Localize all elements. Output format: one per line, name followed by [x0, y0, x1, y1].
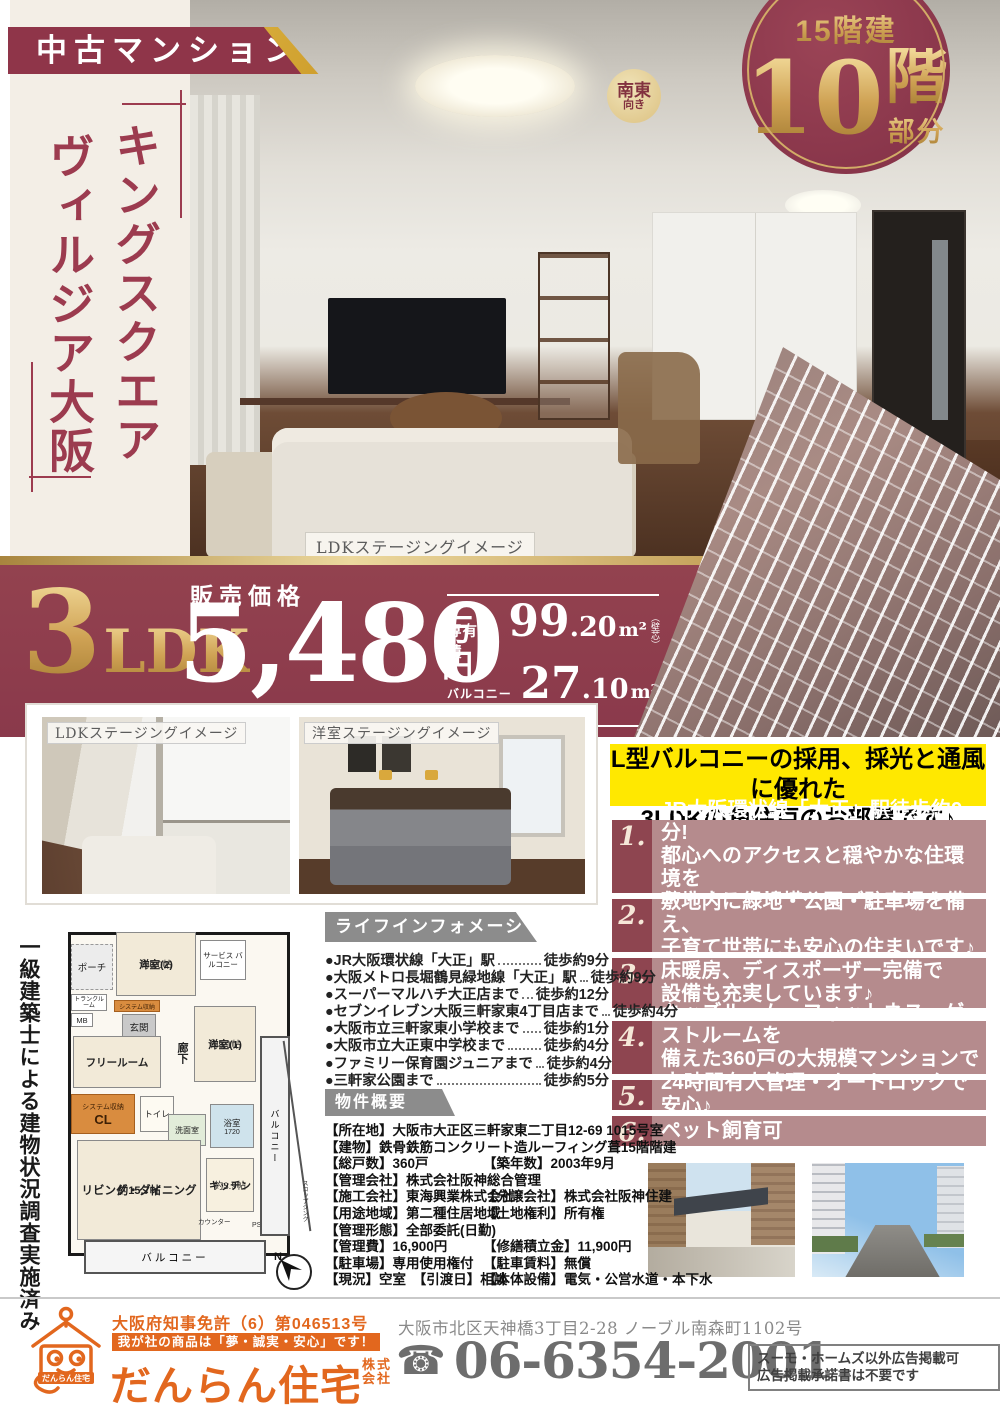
outline-list: 【所在地】大阪市大正区三軒家東二丁目12-69 1015号室 【建物】鉄骨鉄筋コ…: [325, 1119, 647, 1285]
label-counter: カウンター: [198, 1216, 231, 1226]
feature-text: 敷地内に緑地・公園・駐車場を備え、: [661, 891, 966, 936]
yellow-pillow: [425, 770, 438, 780]
company-slogan: 我が社の商品は「夢・誠実・安心」です！: [112, 1333, 380, 1351]
feature-item-1: 1. JR大阪環状線「大正」駅徒歩約9分! 都心へのアクセスと穏やかな住環境を …: [612, 820, 986, 893]
room-mb: MB: [71, 1013, 93, 1027]
room-living-dining: リビング・ダイニング 約15.7帖: [77, 1140, 201, 1240]
floor-badge-kai: 階: [886, 48, 948, 107]
outline-row: 【総戸数】360戸【築年数】2003年9月: [325, 1152, 647, 1169]
outline-row: 【用途地域】第二種住居地域【土地権利】所有権: [325, 1202, 647, 1219]
life-info-row: ●スーパーマルハチ大正店まで徒歩約12分: [325, 983, 609, 1000]
life-info-row: ●大阪メトロ長堀鶴見緑地線「大正」駅徒歩約9分: [325, 966, 609, 983]
feature-text: JR大阪環状線「大正」駅徒歩約9分!: [661, 799, 963, 844]
direction-sub: 向き: [623, 99, 645, 111]
flyer-page: LDKステージングイメージ キングスクエア ヴィルジア大阪 中古マンション 15…: [0, 0, 1000, 1413]
svg-text:N: N: [274, 1251, 282, 1263]
outline-row: 【管理費】16,900円【修繕積立金】11,900円: [325, 1235, 647, 1252]
outline-row: 【現況】空室 【引渡日】相談【本体設備】電気・公営水道・本下水: [325, 1268, 647, 1285]
floor-badge-building: 15階建: [742, 6, 950, 50]
life-info-row: ●ファミリー保育園ジュニアまで徒歩約4分: [325, 1052, 609, 1069]
curtain: [190, 95, 260, 465]
floor-badge-number: 10: [744, 52, 883, 144]
bedroom-staging-photo: 洋室ステージングイメージ: [299, 717, 585, 894]
phone-icon: ☎: [396, 1341, 446, 1381]
greenery: [812, 1236, 858, 1252]
driveway: [845, 1225, 939, 1277]
layout-number: 3: [22, 575, 101, 689]
exclusive-area-int: 99: [508, 600, 569, 644]
room-bath: 浴室 1720: [210, 1104, 254, 1148]
outline-row: 【建物】鉄骨鉄筋コンクリート造ルーフィング葺15階階建: [325, 1136, 647, 1153]
property-title-line1: キングスクエア: [112, 122, 158, 465]
balcony-area-int: 27: [520, 662, 581, 706]
feature-text: 床暖房、ディスポーザー完備で: [661, 960, 943, 982]
ldk-photo-caption: LDKステージングイメージ: [47, 722, 246, 744]
feature-text: キッズルーム・フィットネス・ゲストルームを: [661, 1002, 965, 1047]
floor-plan: 洋室(2) 約6.0帖 サービス バルコニー ポーチ トランクルーム MB シス…: [56, 918, 324, 1313]
floor-badge-part: 部分: [888, 110, 946, 149]
title-panel: キングスクエア ヴィルジア大阪: [10, 0, 190, 558]
exclusive-area-label: 専有面積: [447, 620, 500, 662]
room-free-room: フリールーム: [73, 1036, 161, 1088]
feature-number: 2.: [612, 899, 652, 952]
approach-photo: [812, 1163, 964, 1277]
outline-row: 【駐車場】専用使用権付【駐車賃料】無償: [325, 1252, 647, 1269]
feature-item-4: 4. キッズルーム・フィットネス・ゲストルームを 備えた360戸の大規模マンショ…: [612, 1021, 986, 1074]
exclusive-area-unit: m²: [619, 619, 647, 641]
feature-number: 4.: [612, 1021, 652, 1074]
bedroom-photo-caption: 洋室ステージングイメージ: [304, 722, 499, 744]
feature-item-2: 2. 敷地内に緑地・公園・駐車場を備え、 子育て世帯にも安心の住まいです♪: [612, 899, 986, 952]
outline-header: 物件概要: [325, 1089, 455, 1116]
title-deco-line: [29, 476, 91, 478]
sofa: [82, 836, 216, 894]
exclusive-area-note: （壁芯）: [650, 613, 659, 649]
ad-policy-note: スーモ・ホームズ以外広告掲載可 広告掲載承諾書は不要です: [748, 1344, 1000, 1391]
exclusive-area-dec: .20: [570, 612, 617, 643]
life-info-row: ●JR大阪環状線「大正」駅徒歩約9分: [325, 949, 609, 966]
room-closet: システム収納 CL: [71, 1094, 135, 1134]
feature-item-5: 5. 24時間有人管理・オートロックで安心♪: [612, 1080, 986, 1110]
highlight-line1: L型バルコニーの採用、採光と通風に優れた: [610, 745, 986, 805]
direction-badge: 南東 向き: [607, 69, 661, 123]
balcony-area-dec: .10: [582, 674, 629, 705]
room-hallway: 廊下: [174, 1042, 190, 1064]
room-yoshitsu1: 洋室(1) 約8.1帖: [194, 1006, 256, 1082]
license-number: 大阪府知事免許（6）第046513号: [112, 1310, 368, 1334]
staging-photos-frame: LDKステージングイメージ 洋室ステージングイメージ: [25, 703, 598, 905]
svg-text:だんらん住宅: だんらん住宅: [42, 1373, 90, 1383]
room-trunk: トランクルーム: [71, 994, 107, 1011]
hero-photo-caption: LDKステージングイメージ: [305, 532, 535, 558]
ceiling-light: [415, 55, 575, 117]
compass-icon: N: [270, 1248, 316, 1294]
room-porch: ポーチ: [71, 944, 113, 990]
entrance-photo: [648, 1163, 795, 1277]
feature-number: 1.: [612, 820, 652, 893]
shelf-unit: [538, 252, 610, 420]
outline-row: 【施工会社】東海興業株式会社【分譲会社】株式会社阪神住建: [325, 1185, 647, 1202]
property-title-line2: ヴィルジア大阪: [46, 133, 92, 476]
company-suffix: 株式 会社: [362, 1358, 392, 1386]
feature-text: 24時間有人管理・オートロックで安心♪: [661, 1072, 968, 1117]
inspection-note: 一級建築士による建物状況調査実施済み: [14, 936, 44, 1332]
ldk-staging-photo: LDKステージングイメージ: [42, 717, 290, 894]
outline-row: 【管理会社】株式会社阪神総合管理: [325, 1169, 647, 1186]
direction-main: 南東: [617, 82, 651, 99]
room-kitchen: キッチン 約3.9帖: [206, 1158, 254, 1212]
feature-number: 5.: [612, 1080, 652, 1110]
title-deco-line: [122, 103, 186, 105]
footer-divider: [0, 1297, 1000, 1299]
outline-row: 【管理形態】全部委託(日勤): [325, 1219, 647, 1236]
room-system-storage-1: システム収納: [114, 1000, 160, 1012]
company-name: だんらん住宅: [110, 1352, 362, 1412]
yellow-pillow: [379, 770, 392, 780]
bed: [330, 788, 510, 885]
floor-badge: 15階建 10 階 部分: [742, 0, 950, 174]
life-info-list: ●JR大阪環状線「大正」駅徒歩約9分 ●大阪メトロ長堀鶴見緑地線「大正」駅徒歩約…: [325, 949, 609, 1086]
balcony-bottom: バルコニー: [84, 1240, 266, 1274]
life-info-header: ライフインフォメーション: [325, 912, 537, 942]
life-info-row: ●大阪市立三軒家東小学校まで徒歩約1分: [325, 1017, 609, 1034]
wooden-chair: [618, 352, 700, 464]
property-type-badge: 中古マンション: [8, 27, 320, 74]
company-logo: だんらん住宅: [26, 1306, 106, 1400]
room-yoshitsu2: 洋室(2) 約6.0帖: [116, 932, 196, 996]
room-service-balcony: サービス バルコニー: [200, 940, 246, 980]
highlight-banner: L型バルコニーの採用、採光と通風に優れた 3LDKの角住戸のお部屋です♪: [610, 744, 986, 806]
life-info-row: ●セブンイレブン大阪三軒家東4丁目店まで徒歩約4分: [325, 1000, 609, 1017]
feature-text: ペット飼育可: [661, 1120, 783, 1142]
life-info-row: ●大阪市立大正東中学校まで徒歩約4分: [325, 1034, 609, 1051]
greenery: [924, 1234, 964, 1248]
tv: [328, 298, 506, 394]
label-slop-sink: スロップシンク: [300, 1180, 309, 1222]
outline-row: 【所在地】大阪市大正区三軒家東二丁目12-69 1015号室: [325, 1119, 647, 1136]
title-deco-line: [180, 90, 182, 218]
title-deco-line: [31, 362, 33, 492]
